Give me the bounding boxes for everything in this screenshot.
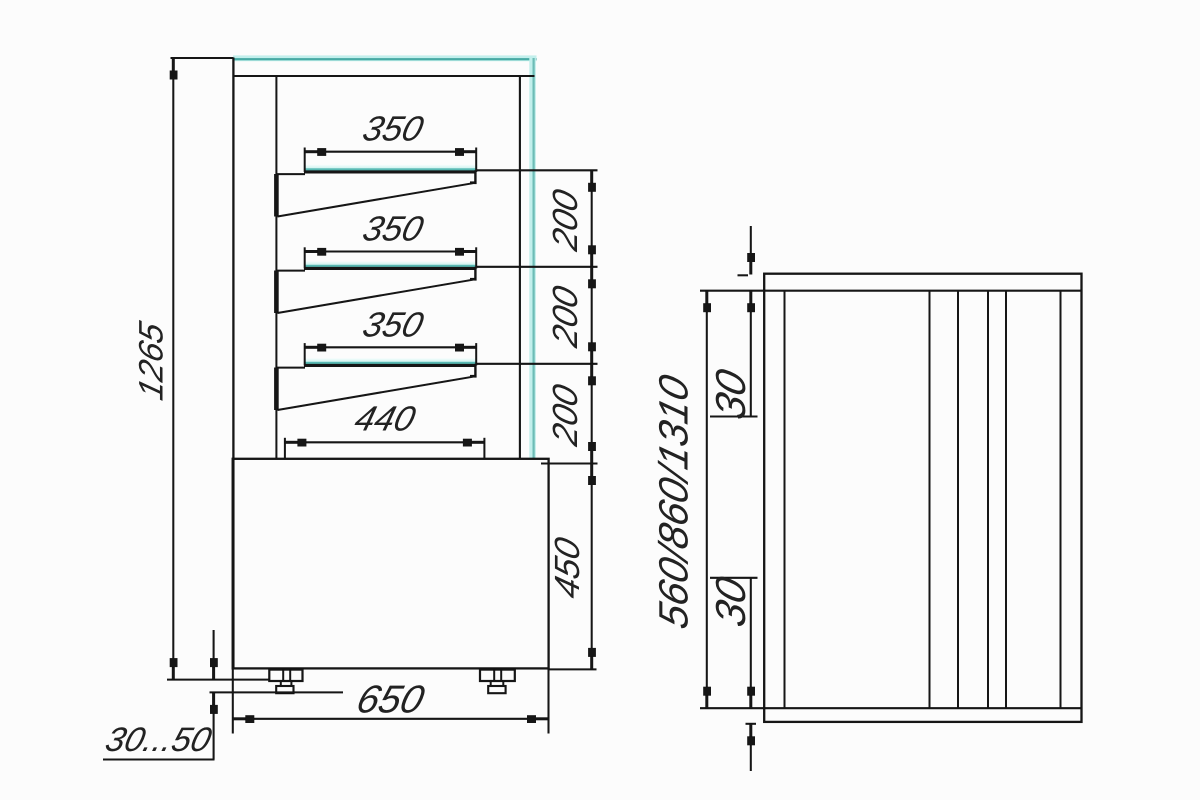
svg-text:30...50: 30...50 bbox=[101, 722, 215, 759]
svg-text:350: 350 bbox=[359, 209, 428, 248]
svg-text:440: 440 bbox=[351, 399, 420, 438]
svg-text:450: 450 bbox=[548, 533, 587, 602]
svg-text:30: 30 bbox=[708, 572, 755, 632]
svg-text:350: 350 bbox=[359, 305, 428, 344]
svg-text:650: 650 bbox=[352, 678, 429, 721]
svg-text:560/860/1310: 560/860/1310 bbox=[650, 370, 696, 633]
svg-text:1265: 1265 bbox=[133, 318, 170, 404]
svg-text:200: 200 bbox=[546, 185, 585, 255]
svg-text:30: 30 bbox=[708, 364, 755, 424]
svg-text:350: 350 bbox=[359, 109, 428, 148]
svg-text:200: 200 bbox=[546, 282, 585, 352]
svg-text:200: 200 bbox=[546, 380, 585, 450]
